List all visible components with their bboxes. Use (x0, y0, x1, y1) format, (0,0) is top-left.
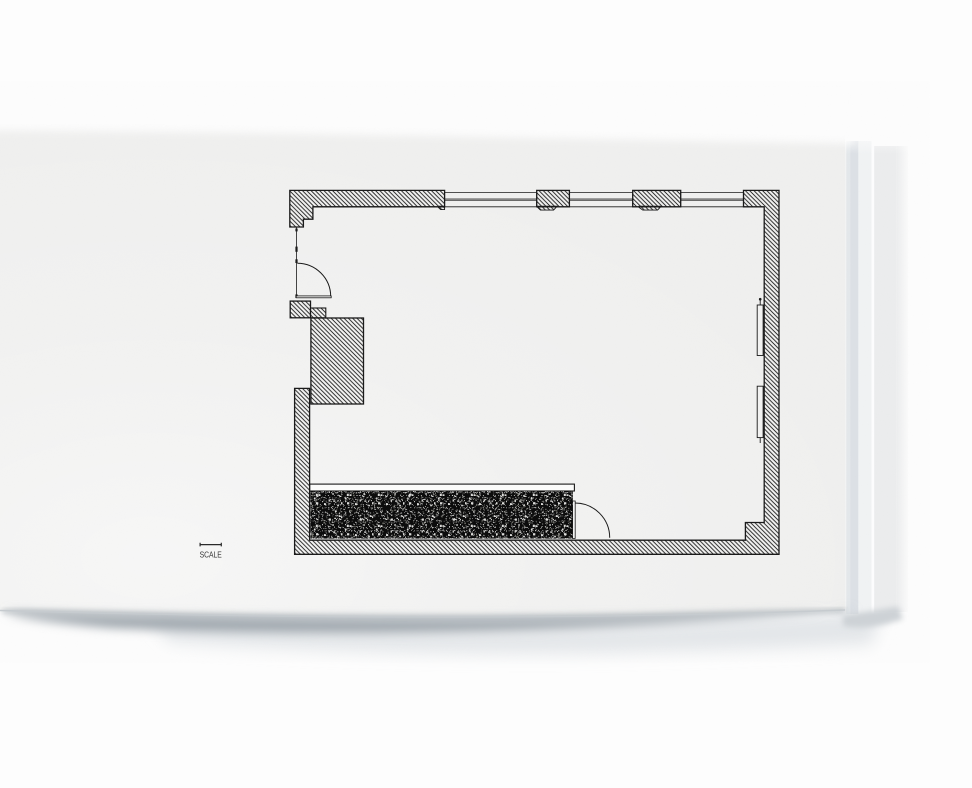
svg-text:SCALE: SCALE (200, 551, 223, 560)
